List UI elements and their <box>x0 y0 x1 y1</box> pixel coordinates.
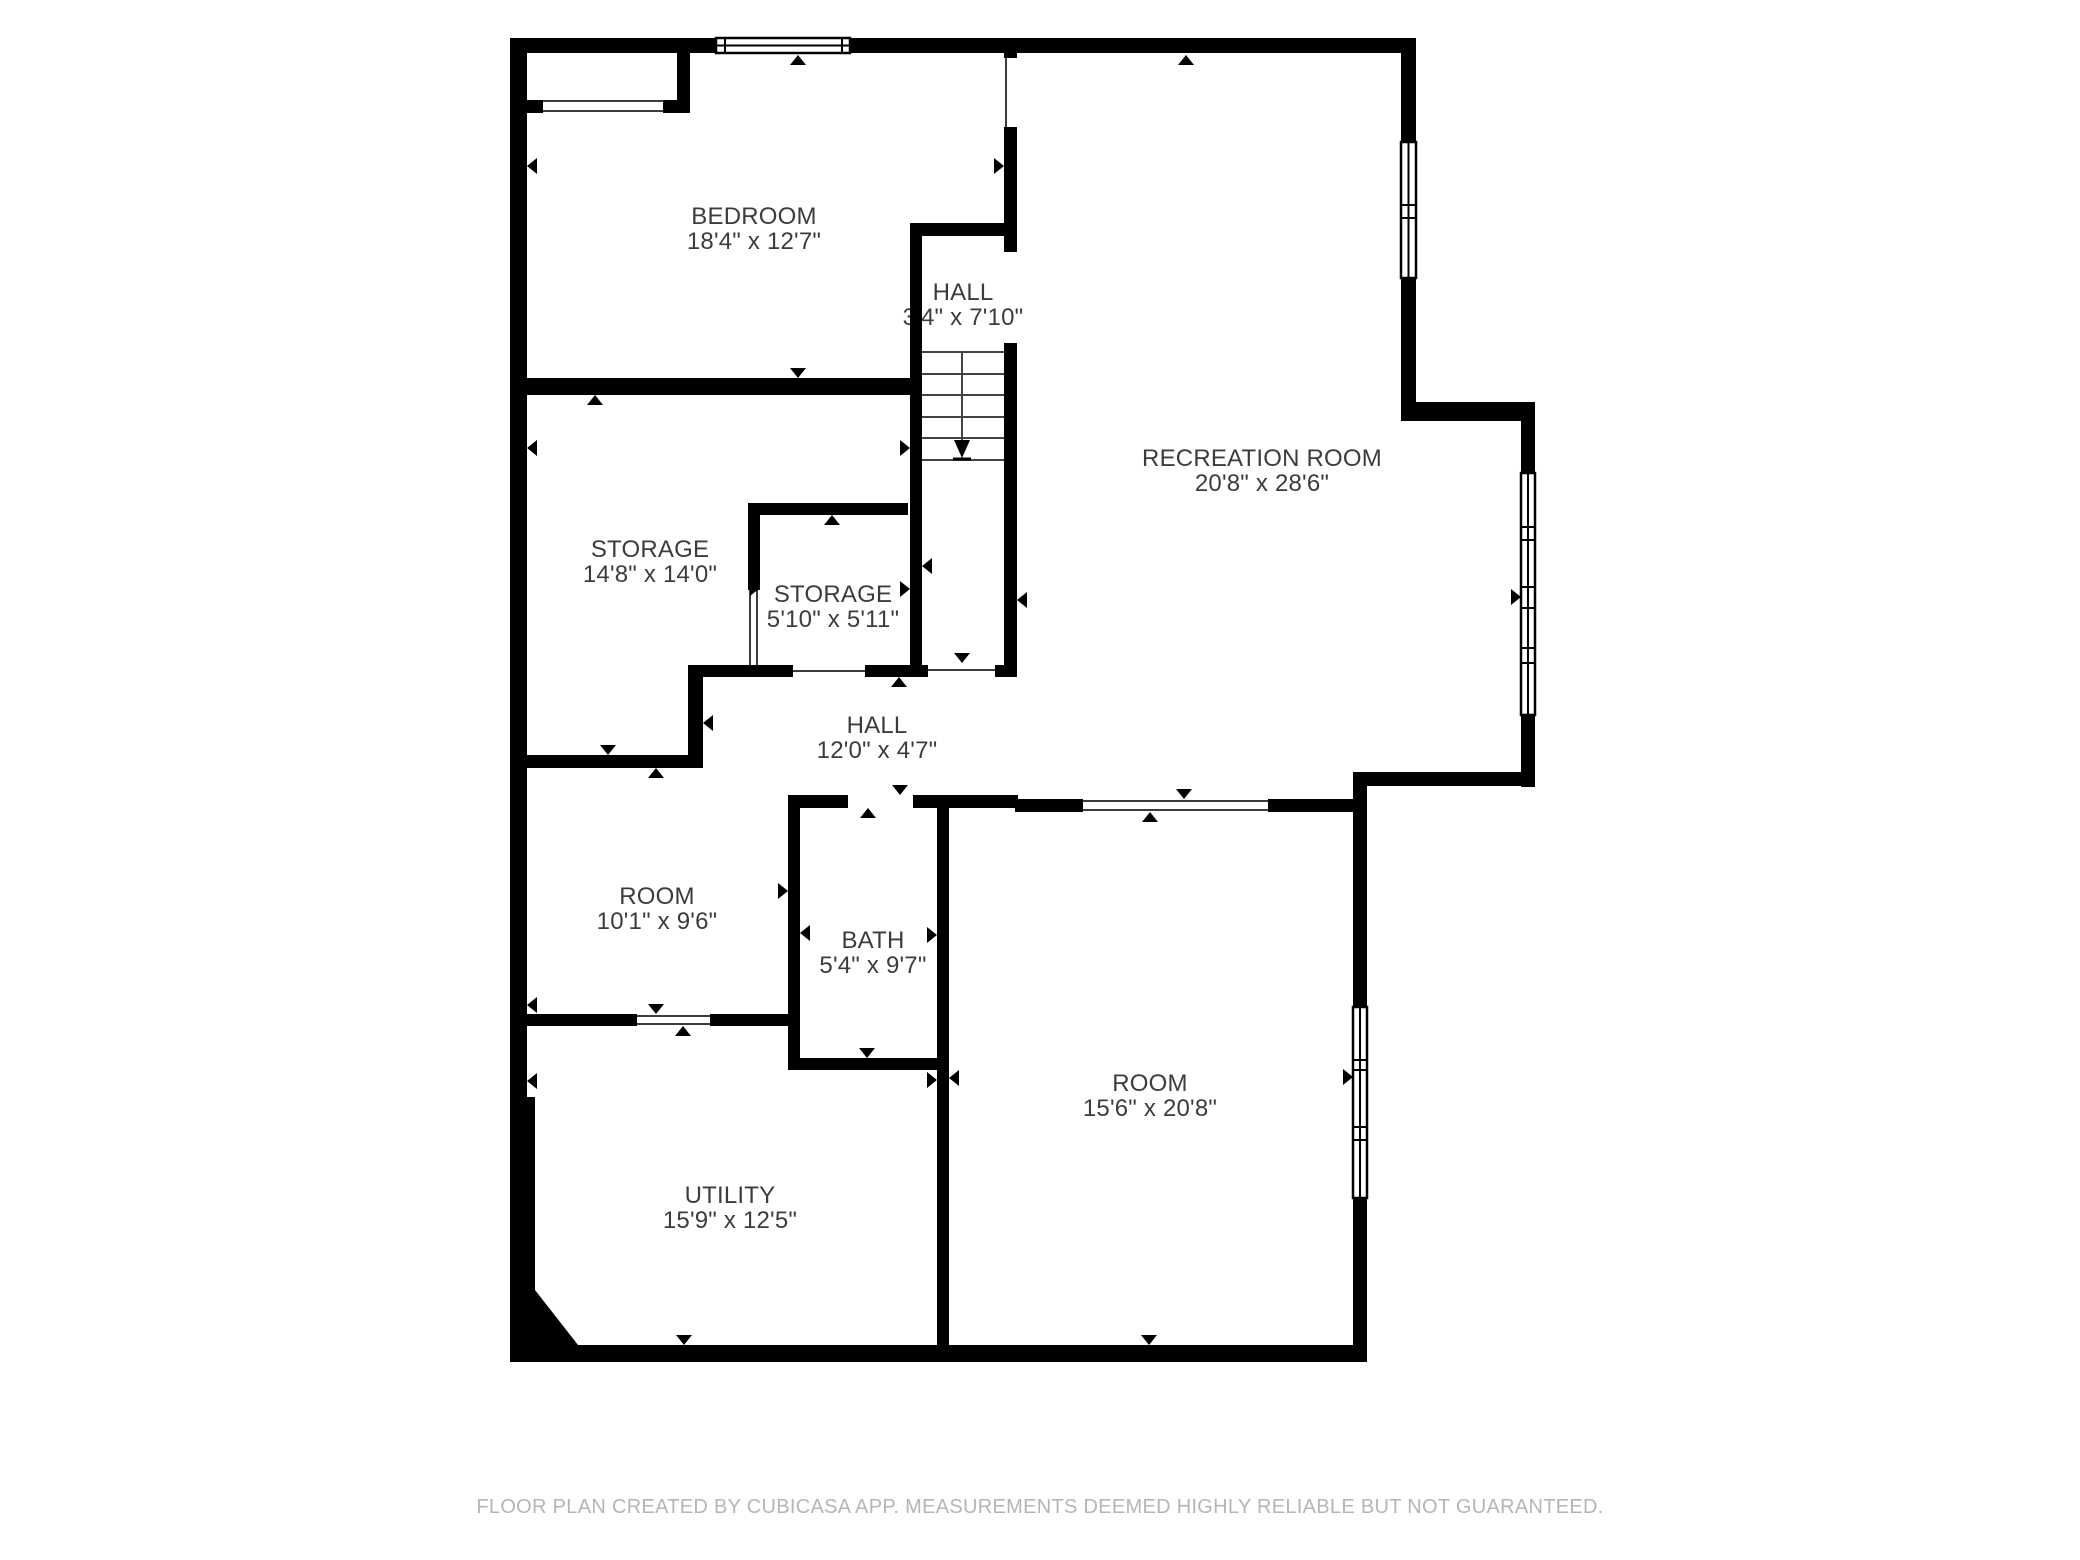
room-name: STORAGE <box>583 537 717 562</box>
room-label-storage-small: STORAGE 5'10" x 5'11" <box>767 582 899 632</box>
room-name: ROOM <box>1083 1071 1217 1096</box>
room-label-bath: BATH 5'4" x 9'7" <box>819 928 926 978</box>
room-name: BEDROOM <box>687 204 821 229</box>
room-dims: 18'4" x 12'7" <box>687 229 821 254</box>
room-dims: 15'6" x 20'8" <box>1083 1096 1217 1121</box>
room-label-recreation-room: RECREATION ROOM 20'8" x 28'6" <box>1142 446 1382 496</box>
room-name: BATH <box>819 928 926 953</box>
room-name: HALL <box>903 280 1024 305</box>
room-label-layer: BEDROOM 18'4" x 12'7" HALL 3'4" x 7'10" … <box>0 0 2080 1560</box>
room-dims: 3'4" x 7'10" <box>903 305 1024 330</box>
room-label-utility: UTILITY 15'9" x 12'5" <box>663 1183 797 1233</box>
room-name: RECREATION ROOM <box>1142 446 1382 471</box>
room-name: HALL <box>817 713 938 738</box>
room-label-bedroom: BEDROOM 18'4" x 12'7" <box>687 204 821 254</box>
room-label-room-right: ROOM 15'6" x 20'8" <box>1083 1071 1217 1121</box>
room-dims: 10'1" x 9'6" <box>597 909 718 934</box>
room-label-hall-upper: HALL 3'4" x 7'10" <box>903 280 1024 330</box>
room-dims: 20'8" x 28'6" <box>1142 471 1382 496</box>
room-name: STORAGE <box>767 582 899 607</box>
room-dims: 14'8" x 14'0" <box>583 562 717 587</box>
floor-plan: BEDROOM 18'4" x 12'7" HALL 3'4" x 7'10" … <box>0 0 2080 1560</box>
room-dims: 15'9" x 12'5" <box>663 1208 797 1233</box>
room-label-storage: STORAGE 14'8" x 14'0" <box>583 537 717 587</box>
room-name: ROOM <box>597 884 718 909</box>
room-label-room-left: ROOM 10'1" x 9'6" <box>597 884 718 934</box>
room-dims: 5'4" x 9'7" <box>819 953 926 978</box>
room-dims: 12'0" x 4'7" <box>817 738 938 763</box>
room-dims: 5'10" x 5'11" <box>767 607 899 632</box>
room-name: UTILITY <box>663 1183 797 1208</box>
footer-disclaimer: FLOOR PLAN CREATED BY CUBICASA APP. MEAS… <box>0 1496 2080 1519</box>
room-label-hall: HALL 12'0" x 4'7" <box>817 713 938 763</box>
